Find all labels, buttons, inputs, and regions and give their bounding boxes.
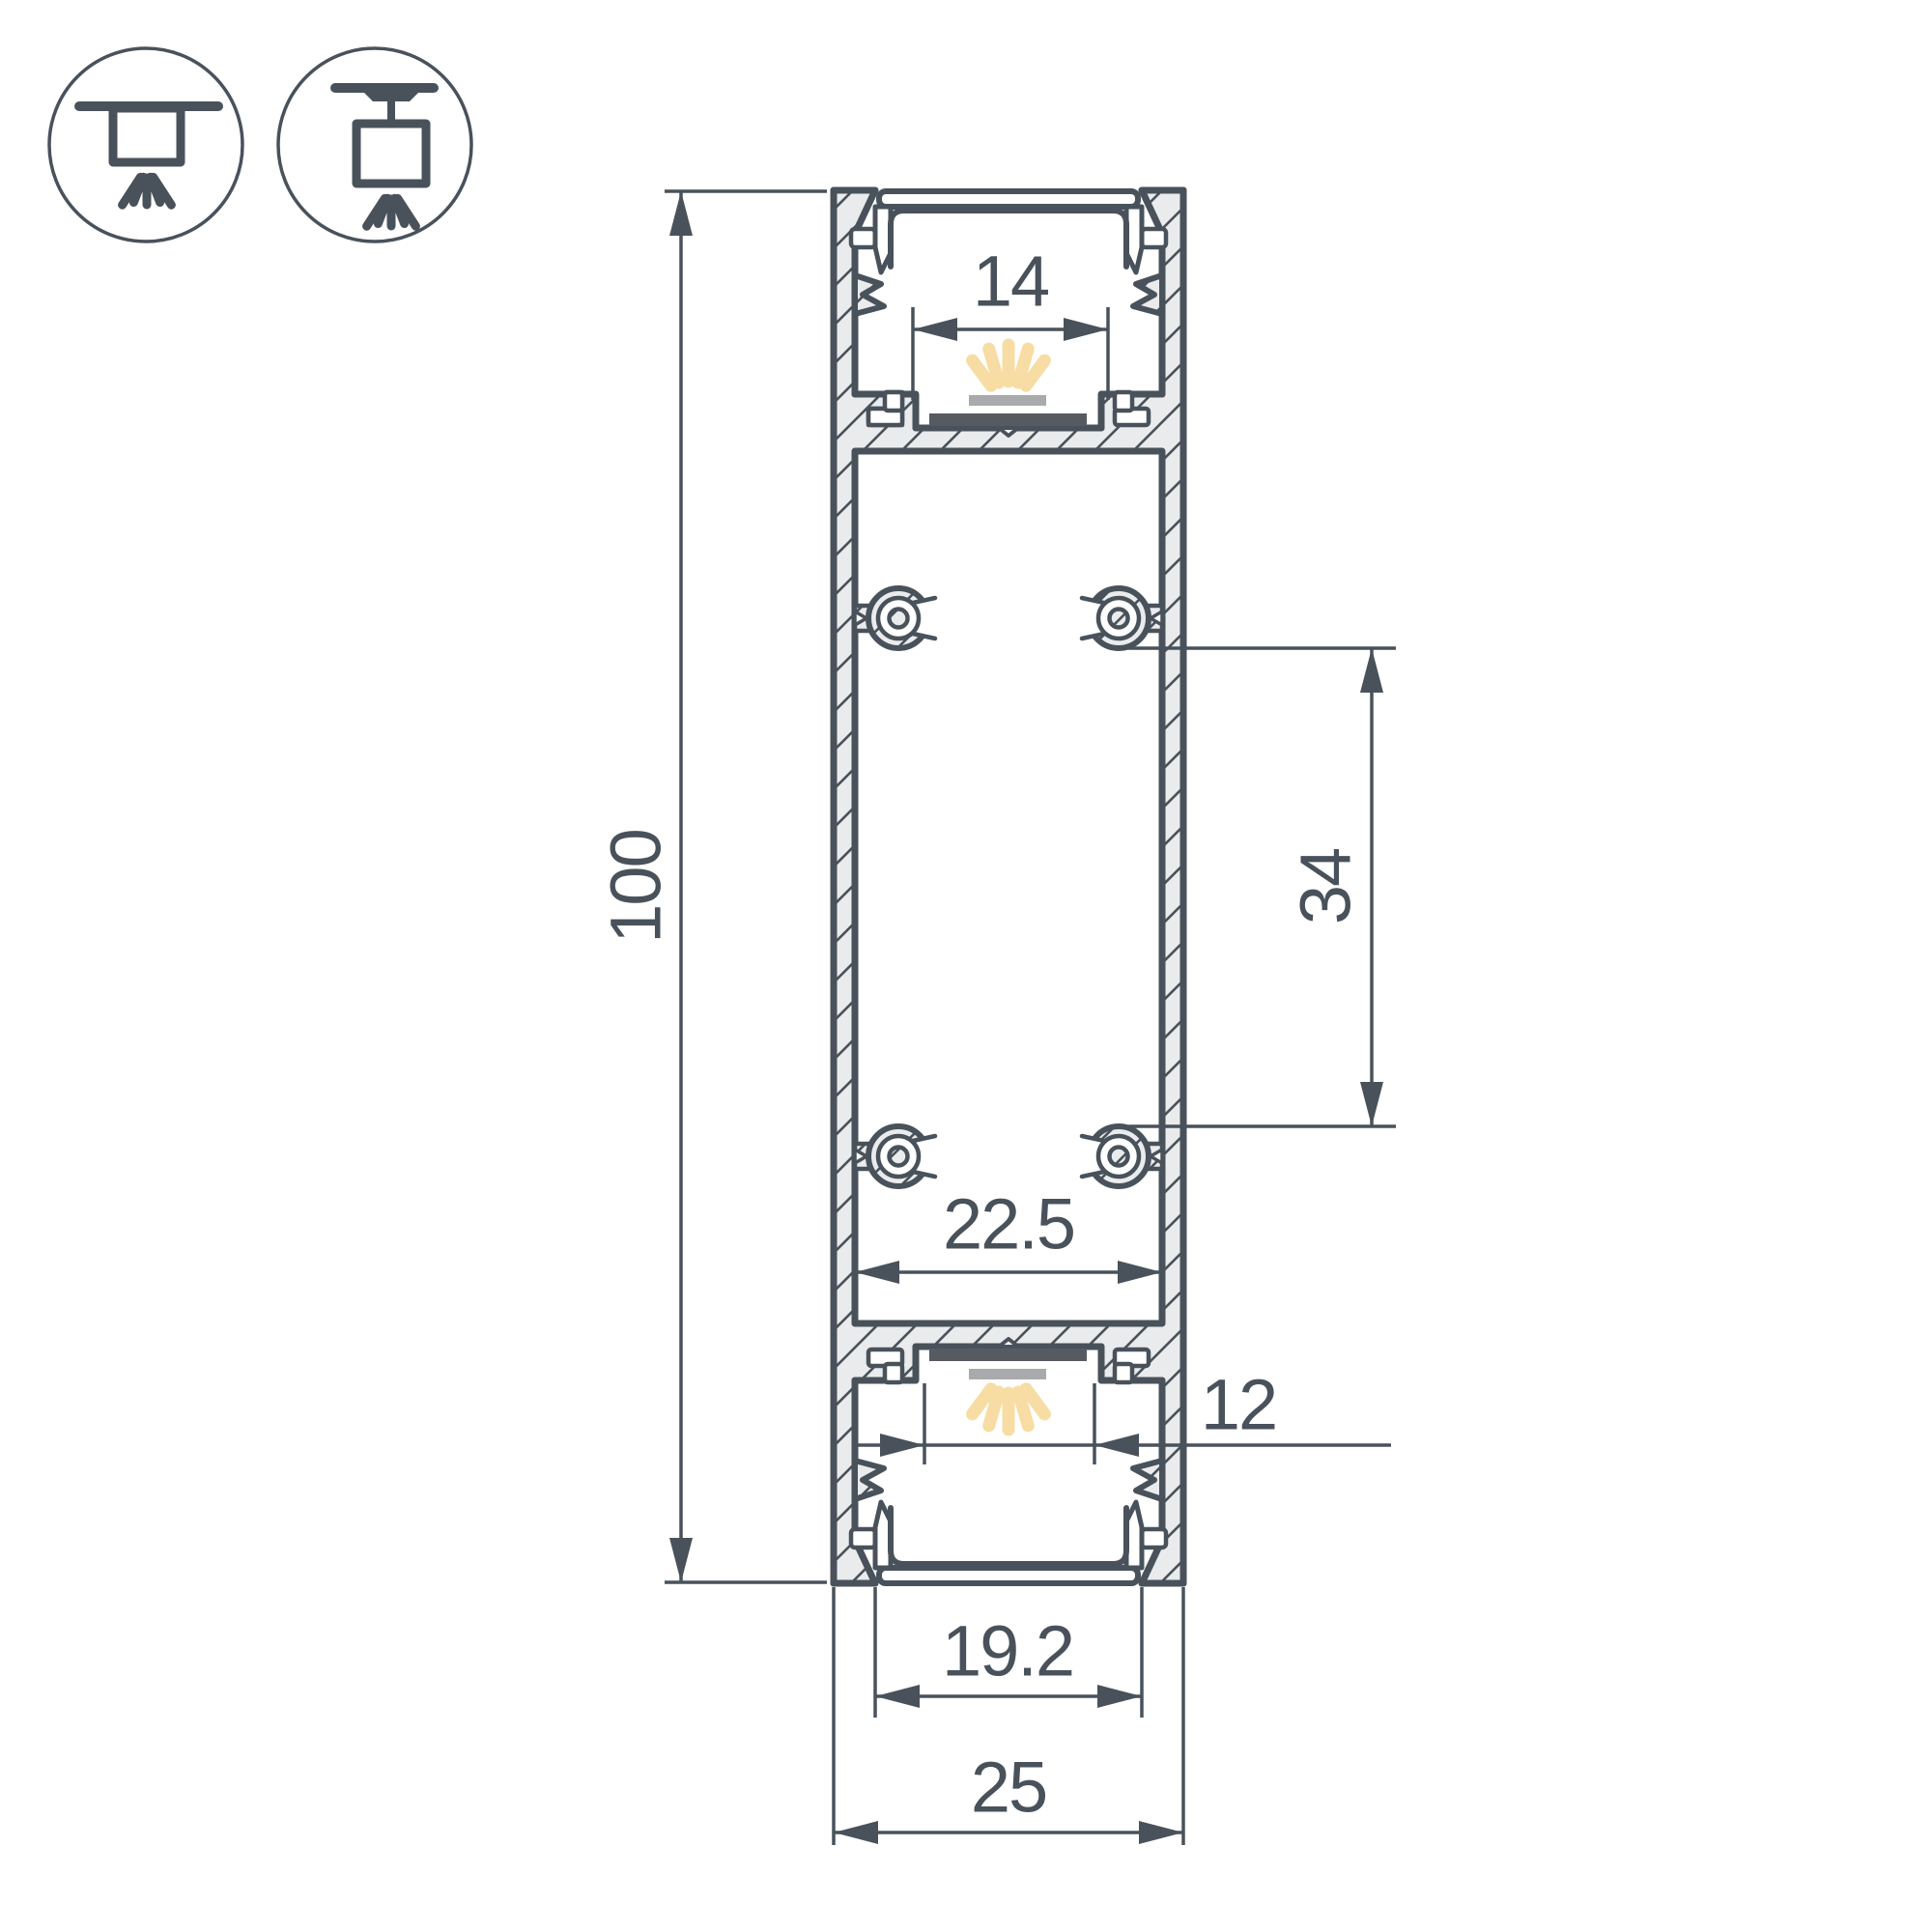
bottom-cover (875, 1502, 1142, 1583)
boss-neck-cuts (855, 611, 1162, 1163)
dim-19-2-label: 19.2 (942, 1611, 1073, 1691)
boss-necks (855, 606, 1162, 1169)
dim-22-5-label: 22.5 (943, 1184, 1074, 1264)
cover-shell (891, 1508, 1126, 1564)
light-rays-icon (367, 198, 416, 226)
profile-drawing: 100 14 34 22.5 12 19.2 25 (0, 0, 1932, 1932)
screw-bosses (868, 588, 1149, 1186)
led-pad (969, 1369, 1046, 1379)
light-rays-icon (123, 177, 172, 205)
icon-circle (49, 48, 242, 241)
dim-14-label: 14 (973, 241, 1048, 322)
led-pad (969, 395, 1046, 406)
lamp-box (356, 124, 426, 184)
screw-boss (1082, 588, 1149, 648)
top-led-strip (929, 345, 1087, 426)
dim-25-label: 25 (971, 1747, 1046, 1828)
dim-12-label: 12 (1201, 1365, 1276, 1445)
dim-34-label: 34 (1286, 849, 1366, 924)
dim-100-label: 100 (596, 830, 676, 943)
surface-mount-icon (49, 48, 242, 241)
screw-boss (868, 1126, 935, 1186)
led-pcb (929, 413, 1087, 426)
drawing-canvas: 100 14 34 22.5 12 19.2 25 (0, 0, 1932, 1932)
lamp-box (113, 108, 181, 162)
bottom-led-strip (929, 1349, 1087, 1430)
dim-100 (665, 191, 827, 1582)
dimension-labels: 100 14 34 22.5 12 19.2 25 (596, 241, 1366, 1828)
screw-boss (1082, 1126, 1149, 1186)
dim-22-5 (855, 1261, 1162, 1284)
led-pcb (929, 1349, 1087, 1361)
pendant-mount-icon (278, 48, 471, 241)
led-glow-rays-icon (973, 345, 1045, 385)
spring-barbs (855, 275, 1162, 1499)
dim-12 (858, 1383, 1391, 1464)
screw-boss (868, 588, 935, 648)
led-glow-rays-icon (973, 1389, 1045, 1430)
